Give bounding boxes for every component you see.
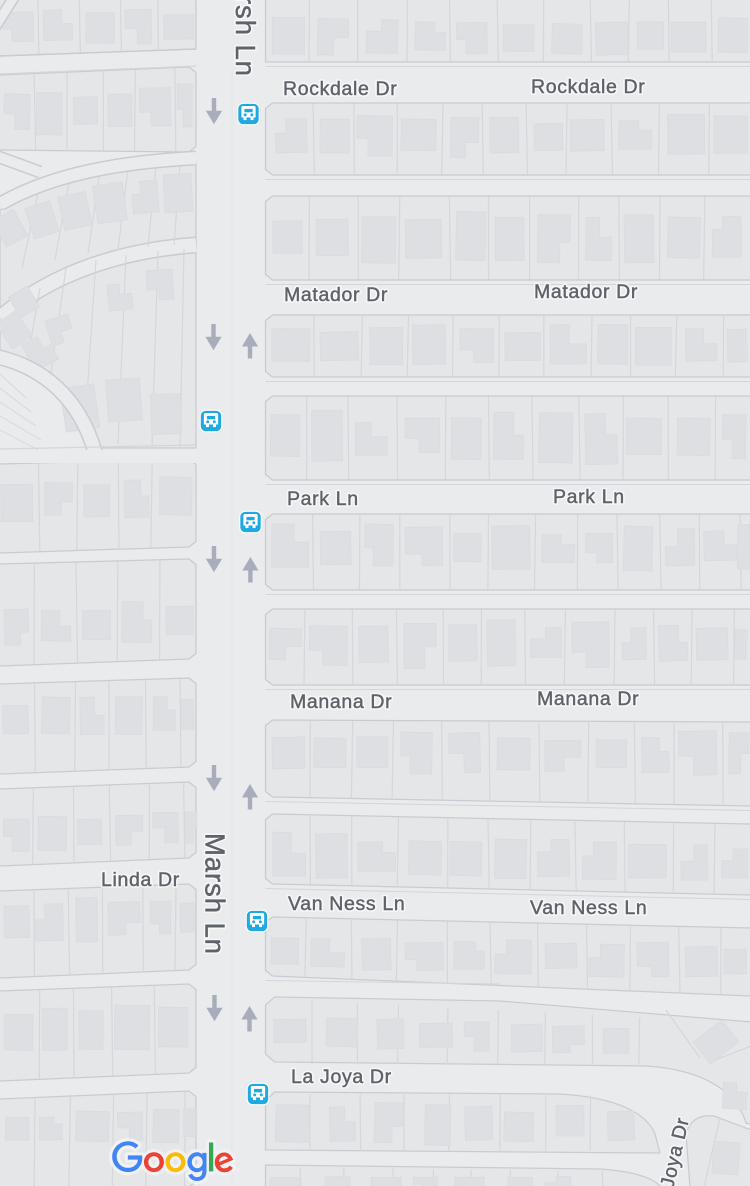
svg-text:Van Ness Ln: Van Ness Ln [530,897,647,919]
svg-text:Marsh Ln: Marsh Ln [230,0,261,77]
svg-text:Manana Dr: Manana Dr [537,688,639,710]
svg-text:Matador Dr: Matador Dr [284,284,388,306]
svg-text:Park Ln: Park Ln [553,486,625,508]
svg-text:Van Ness Ln: Van Ness Ln [288,893,405,915]
svg-text:Rockdale Dr: Rockdale Dr [283,78,397,100]
svg-text:Linda Dr: Linda Dr [101,869,180,891]
svg-text:Park Ln: Park Ln [287,488,359,510]
svg-text:La Joya Dr: La Joya Dr [291,1066,392,1088]
svg-text:Marsh Ln: Marsh Ln [200,833,231,955]
svg-text:Rockdale Dr: Rockdale Dr [531,76,645,98]
svg-text:Matador Dr: Matador Dr [534,281,638,303]
svg-text:Manana Dr: Manana Dr [290,691,392,713]
